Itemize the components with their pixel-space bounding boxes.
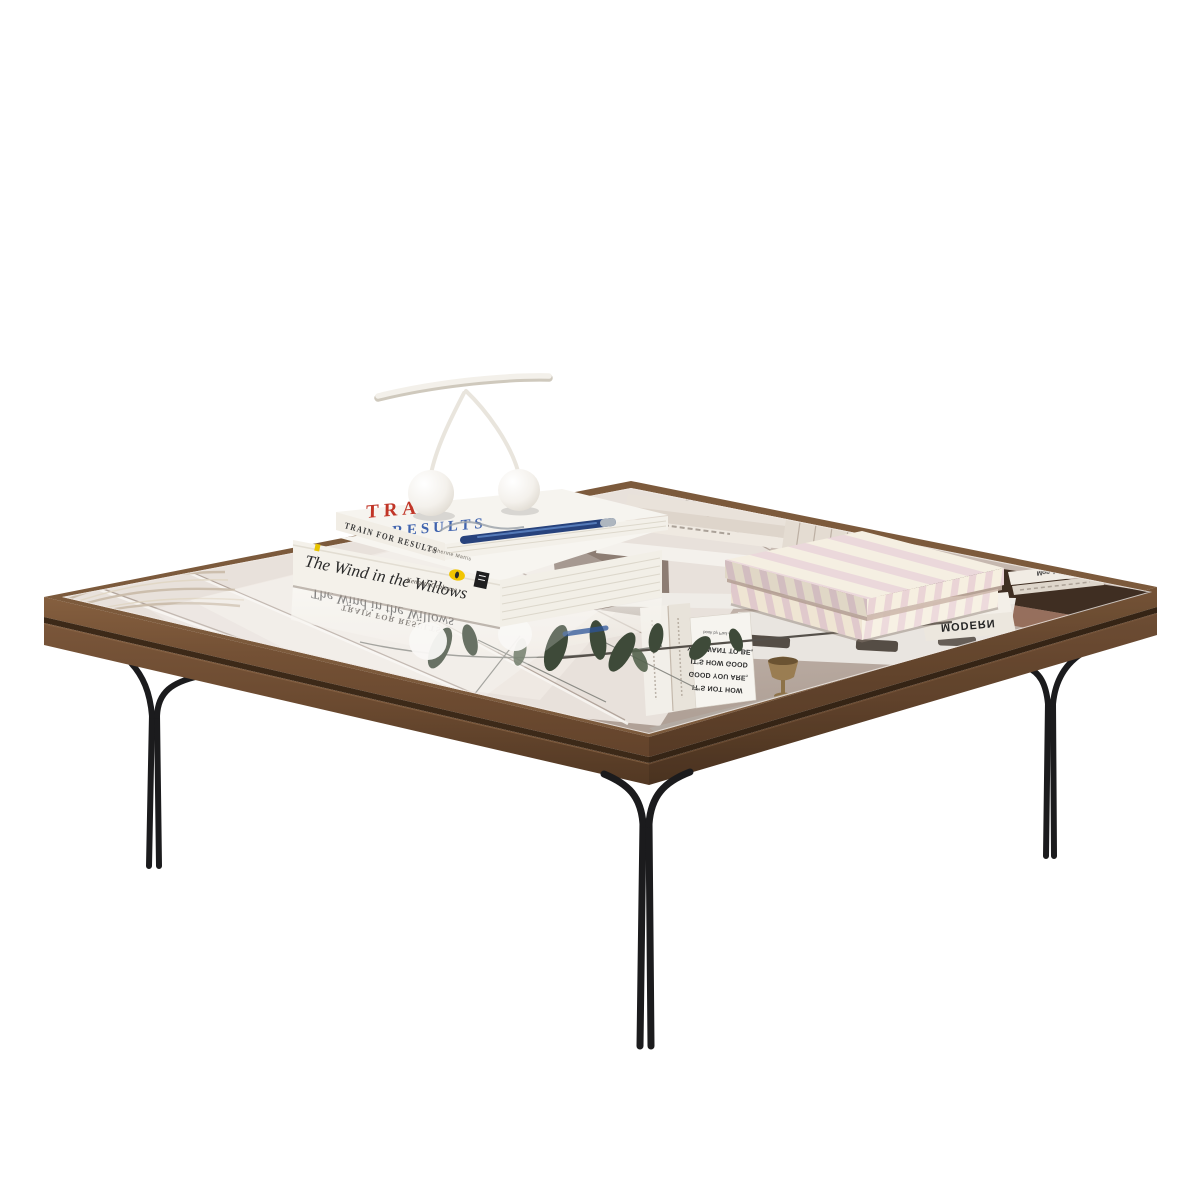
table-leg-left bbox=[131, 663, 200, 866]
leg-rod bbox=[1046, 702, 1048, 856]
leg-branch bbox=[131, 663, 152, 716]
leg-rod bbox=[157, 714, 159, 866]
cherry-stem-left bbox=[431, 393, 464, 474]
leg-branch bbox=[157, 676, 200, 716]
cherry-ball-left bbox=[408, 470, 454, 516]
product-photo: BETTER bbox=[0, 0, 1200, 1200]
table-leg-right bbox=[1026, 652, 1084, 856]
pen-tip bbox=[604, 522, 612, 523]
goblet-rim bbox=[768, 657, 798, 665]
cherry-stem-right bbox=[466, 391, 518, 471]
leg-rod bbox=[640, 822, 643, 1046]
coffee-table-scene: BETTER bbox=[0, 0, 1200, 1200]
leg-rod bbox=[1053, 702, 1054, 856]
leg-rod bbox=[149, 714, 152, 866]
cherry-ball-right bbox=[498, 469, 540, 511]
table-leg-front bbox=[604, 772, 690, 1046]
leg-rod bbox=[649, 822, 651, 1046]
